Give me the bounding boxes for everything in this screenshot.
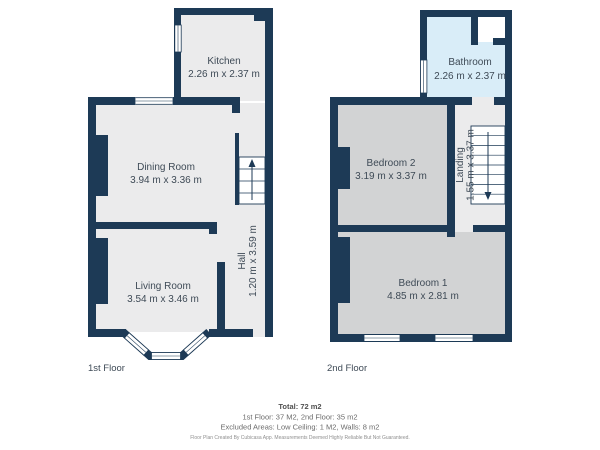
front-door-opening xyxy=(253,329,265,337)
bedroom1-dimensions: 4.85 m x 2.81 m xyxy=(387,291,459,302)
bedroom2-landing-divider-wall xyxy=(447,104,455,226)
bedroom1-door-opening xyxy=(455,225,473,232)
bathroom-label: Bathroom xyxy=(448,57,491,68)
disclaimer-text: Floor Plan Created By Cubicasa App. Meas… xyxy=(190,435,410,441)
bathroom-door-opening xyxy=(472,97,494,105)
bay-window-left-pane xyxy=(124,333,148,355)
first-floor-caption: 1st Floor xyxy=(88,363,125,374)
landing-dimensions: 1.55 m x 3.37 m xyxy=(466,129,477,201)
under-stairs-wall xyxy=(473,225,505,232)
second-floor-caption: 2nd Floor xyxy=(327,363,367,374)
first-floor-plan: Kitchen 2.26 m x 2.37 m Dining Room 3.94… xyxy=(88,8,273,374)
total-area-text: Total: 72 m2 xyxy=(278,402,321,411)
dining-living-divider-wall xyxy=(96,222,217,229)
footer-summary: Total: 72 m2 1st Floor: 37 M2, 2nd Floor… xyxy=(190,402,410,441)
dining-window xyxy=(135,98,173,105)
landing-label: Landing xyxy=(455,147,466,183)
second-floor-plan: Bathroom 2.26 m x 2.37 m Bedroom 2 3.19 … xyxy=(327,10,512,374)
hall-label: Hall xyxy=(237,252,248,269)
kitchen-label: Kitchen xyxy=(207,56,240,67)
chimney-breast-bedroom2 xyxy=(338,147,350,189)
bay-window-right-pane xyxy=(183,333,207,355)
door-jamb-bedroom1 xyxy=(447,225,455,237)
living-room-label: Living Room xyxy=(135,281,191,292)
bedroom2-label: Bedroom 2 xyxy=(367,158,416,169)
living-room-dimensions: 3.54 m x 3.46 m xyxy=(127,294,199,305)
bathroom-window xyxy=(421,60,427,93)
floor-plan-page: Kitchen 2.26 m x 2.37 m Dining Room 3.94… xyxy=(0,0,600,450)
hall-living-divider-wall xyxy=(217,262,225,337)
excluded-areas-text: Excluded Areas: Low Ceiling: 1 M2, Walls… xyxy=(221,423,380,432)
floor-areas-text: 1st Floor: 37 M2, 2nd Floor: 35 m2 xyxy=(242,413,357,422)
bedroom1-window-right xyxy=(435,335,473,342)
chimney-breast-living xyxy=(96,238,108,304)
floor-plan-drawing: Kitchen 2.26 m x 2.37 m Dining Room 3.94… xyxy=(0,0,600,450)
chimney-breast-dining xyxy=(96,135,108,196)
hall-dimensions: 1.20 m x 3.59 m xyxy=(248,225,259,297)
bay-window xyxy=(123,332,209,360)
chimney-breast-bedroom1 xyxy=(338,237,350,303)
bathroom-dimensions: 2.26 m x 2.37 m xyxy=(434,71,506,82)
kitchen-window xyxy=(175,25,181,52)
door-jamb-living xyxy=(209,222,217,234)
bedroom-divider-wall xyxy=(337,225,455,232)
dining-room-label: Dining Room xyxy=(137,162,195,173)
kitchen-dimensions: 2.26 m x 2.37 m xyxy=(188,69,260,80)
hall-upper-wall-stub xyxy=(232,97,240,113)
bedroom2-dimensions: 3.19 m x 3.37 m xyxy=(355,171,427,182)
bedroom1-window-left xyxy=(364,335,400,342)
bathroom-recess-wall xyxy=(471,10,478,45)
bedroom1-label: Bedroom 1 xyxy=(399,278,448,289)
dining-room-dimensions: 3.94 m x 3.36 m xyxy=(130,175,202,186)
stair-stringer xyxy=(235,133,239,205)
